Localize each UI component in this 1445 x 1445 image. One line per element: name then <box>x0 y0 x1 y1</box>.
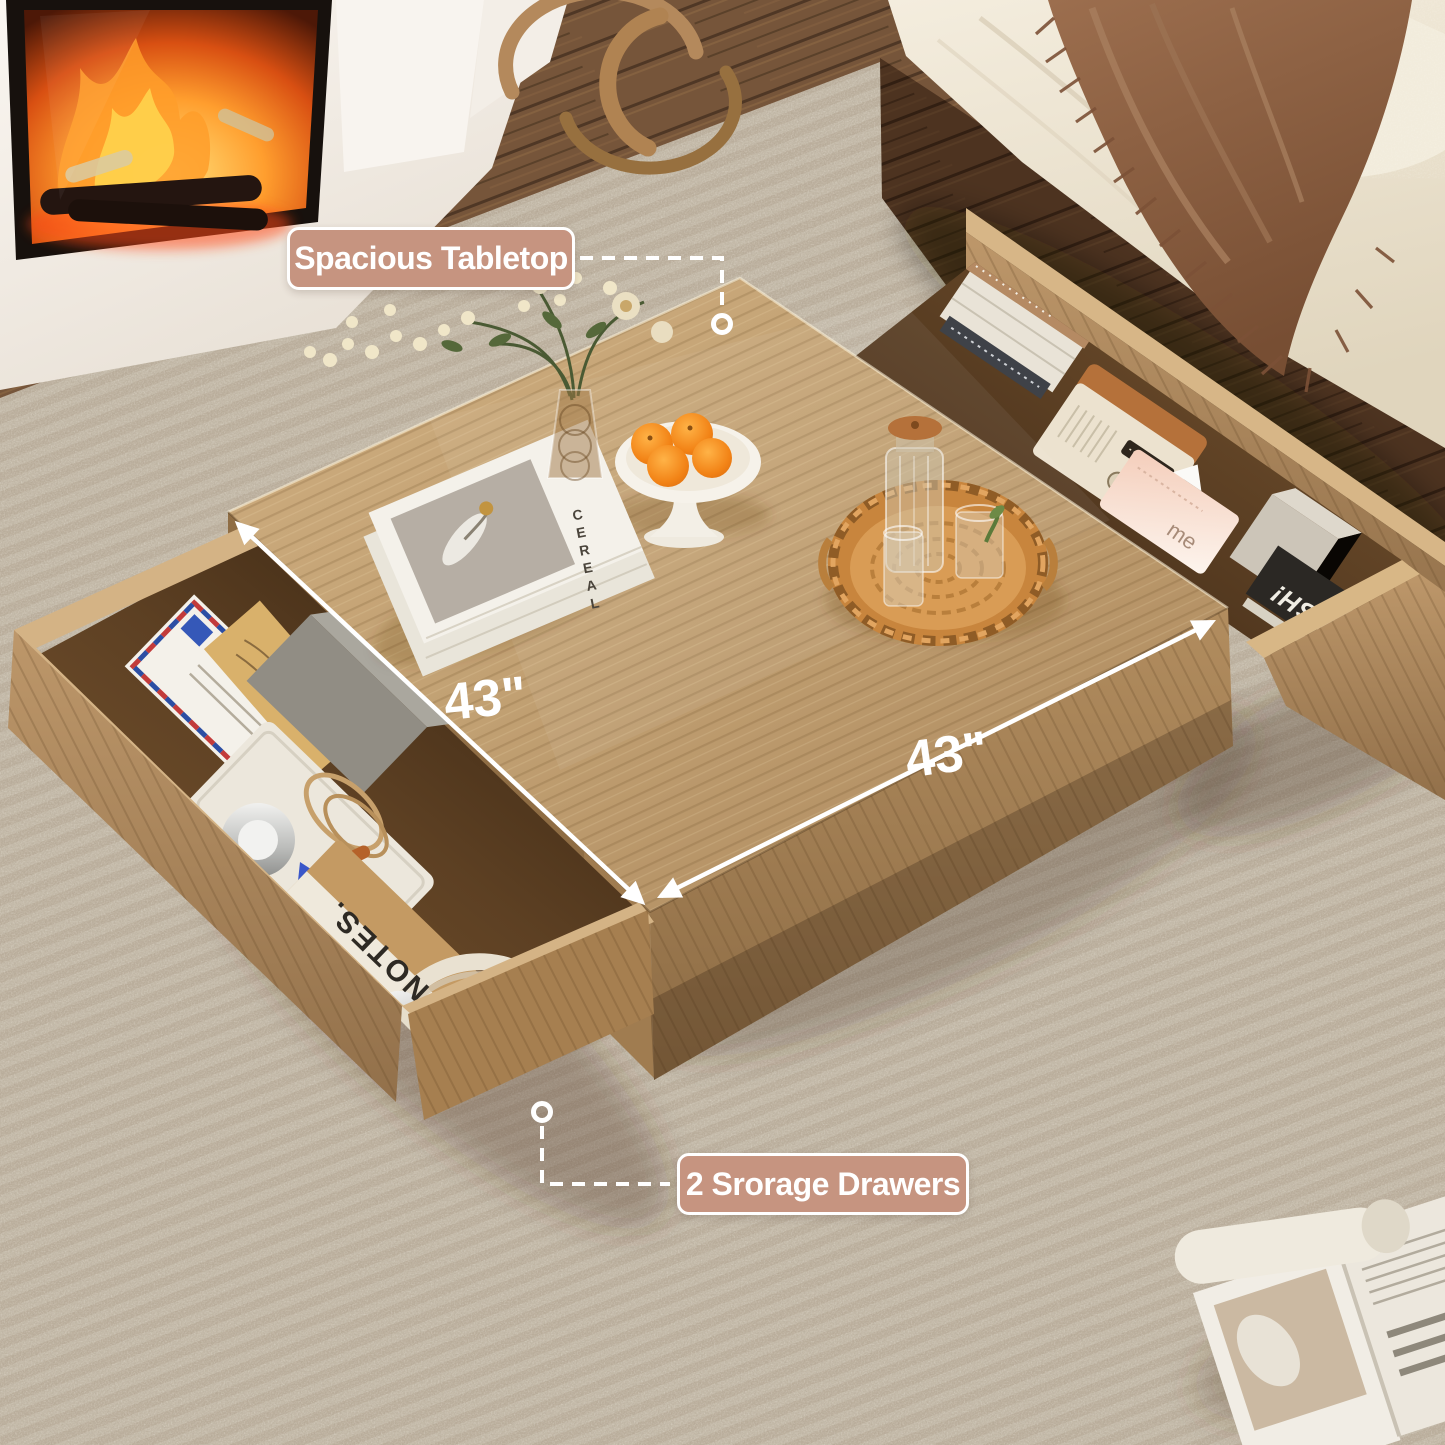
drinking-glass <box>884 526 923 606</box>
dimension-label-left: 43" <box>441 666 529 732</box>
dimension-label-right: 43" <box>902 721 992 790</box>
drinking-glass <box>956 503 1007 578</box>
tabletop-callout-text: Spacious Tabletop <box>294 240 568 277</box>
drawers-callout-text: 2 Srorage Drawers <box>686 1166 960 1203</box>
fireplace-column <box>336 0 484 172</box>
tabletop-callout: Spacious Tabletop <box>287 227 575 290</box>
drawers-callout: 2 Srorage Drawers <box>677 1153 969 1215</box>
scene-canvas: UNLEASH! me <box>0 0 1445 1445</box>
rose-bloom <box>651 321 673 343</box>
product-photo-scene: UNLEASH! me <box>0 0 1445 1445</box>
